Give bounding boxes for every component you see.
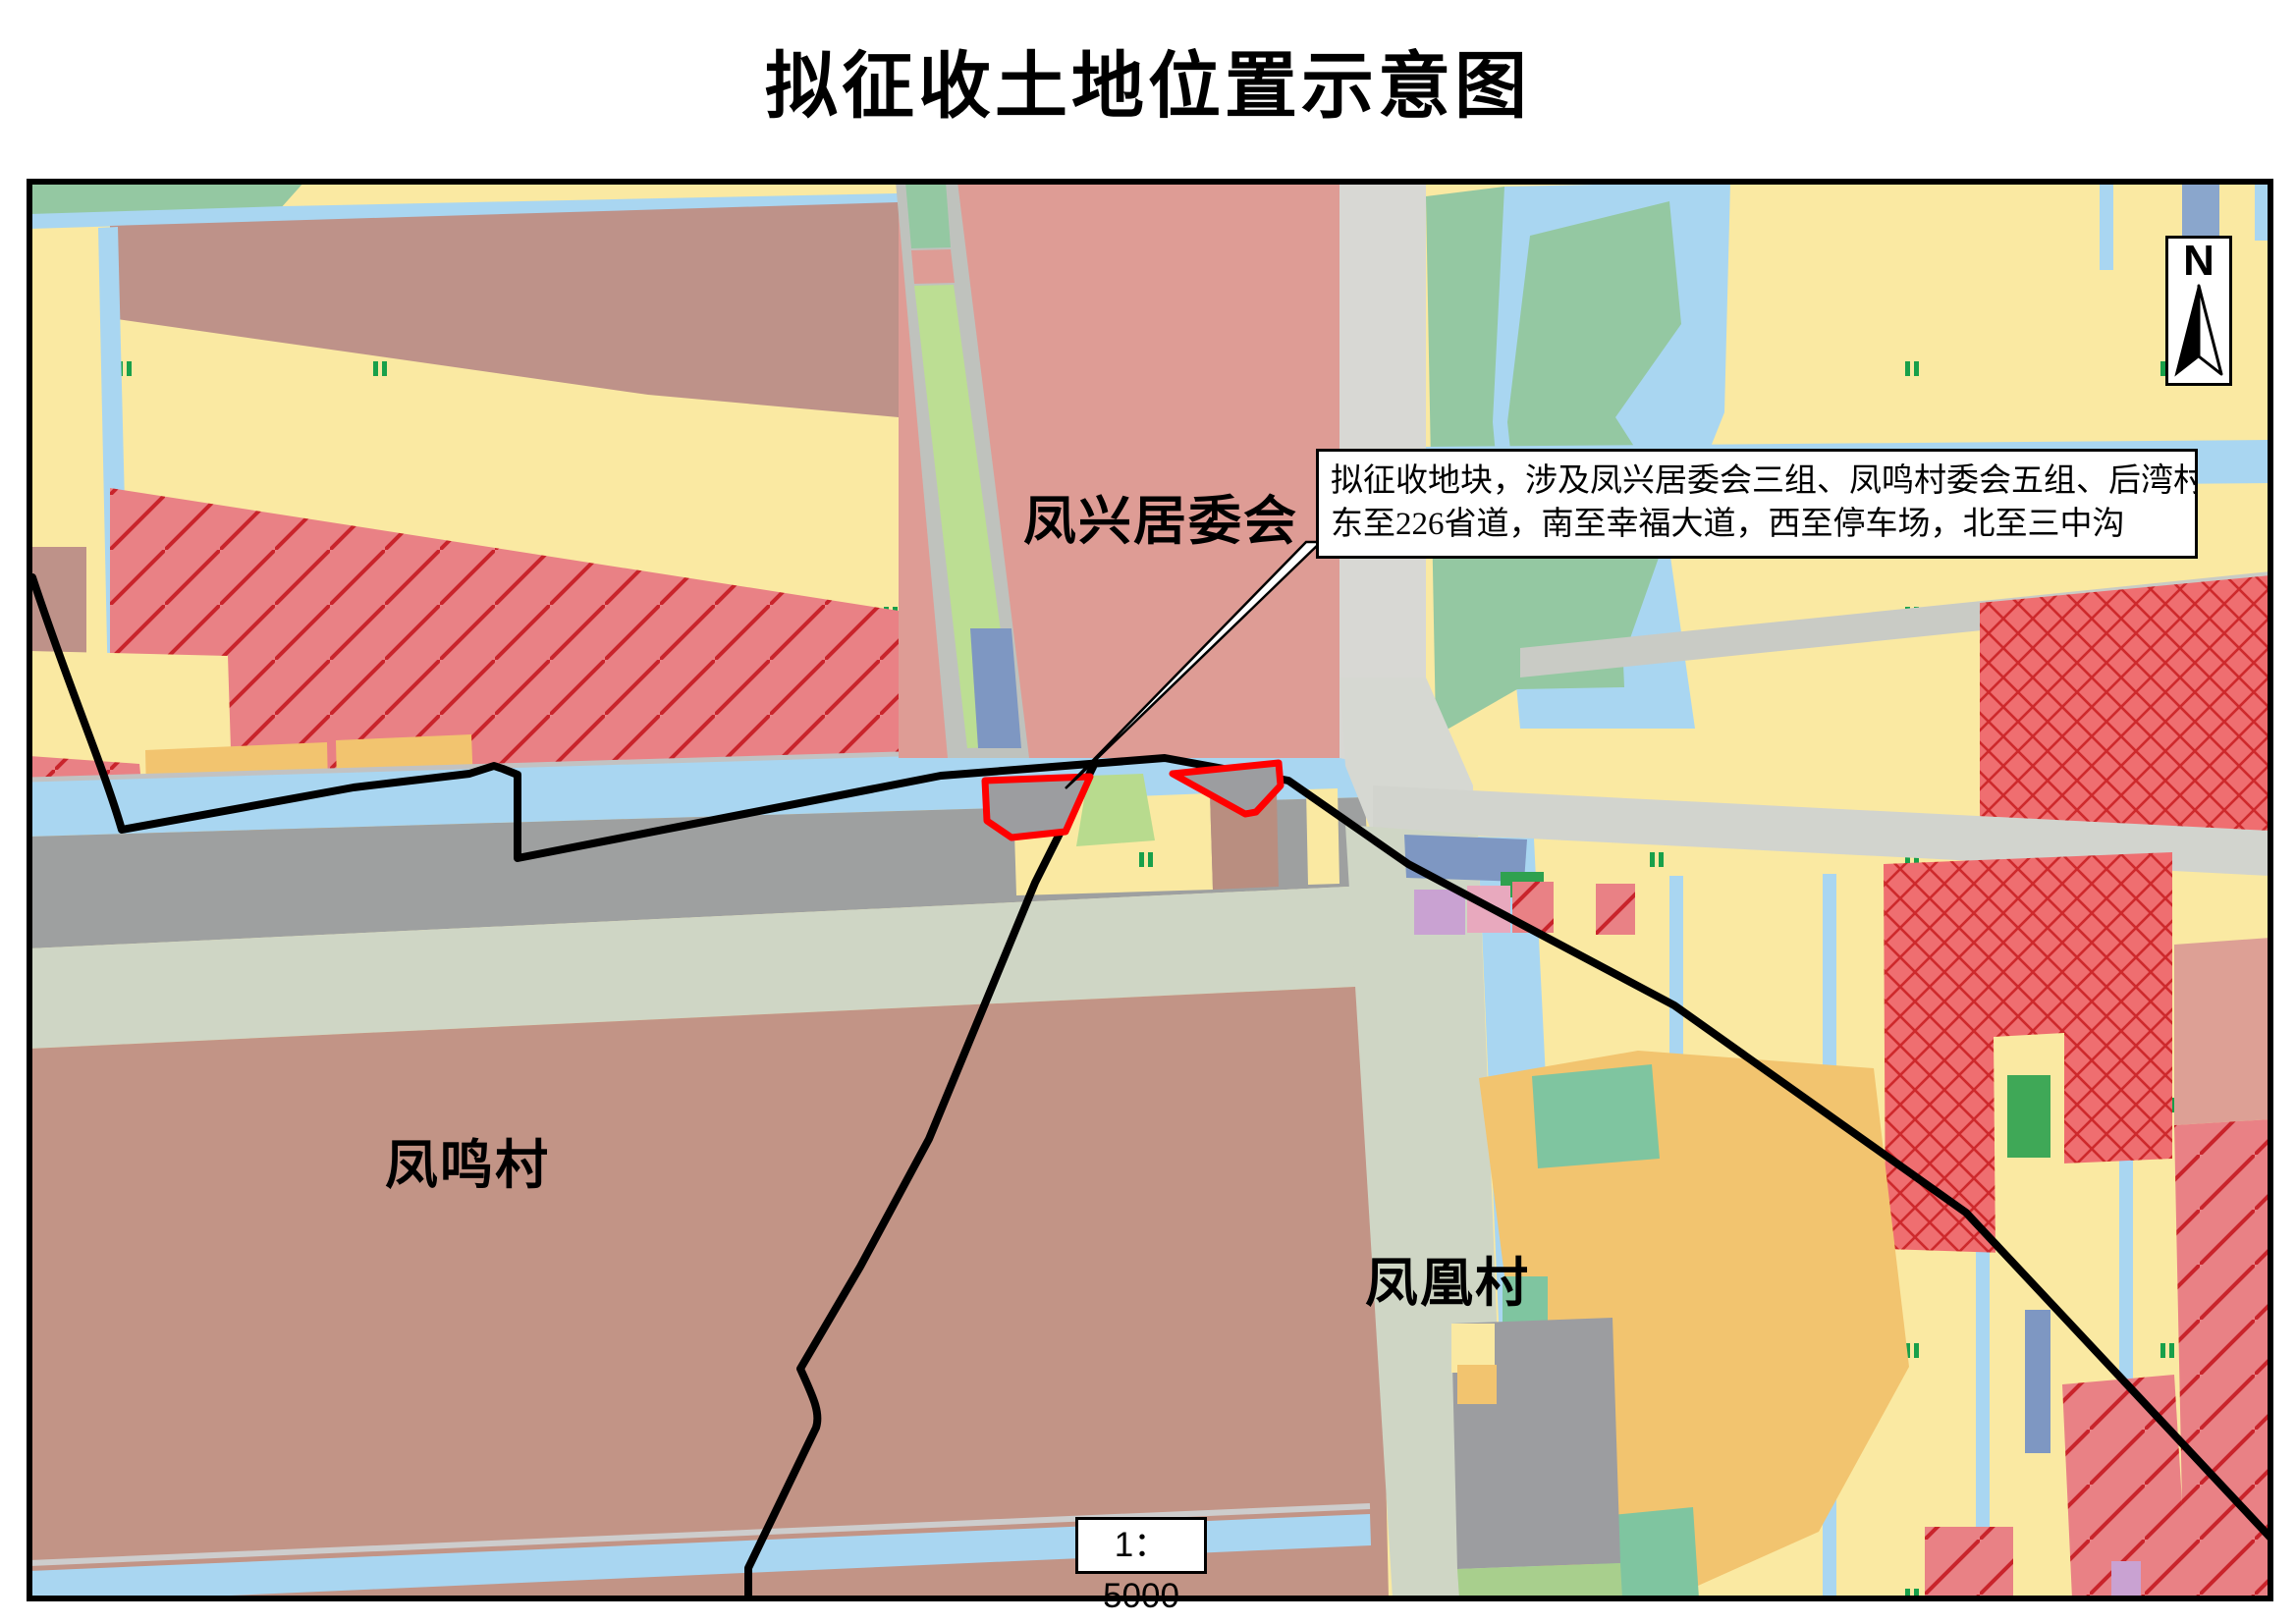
north-label: N [2168, 239, 2229, 284]
fengming-village-layer [29, 986, 1389, 1604]
label-fenghuang-village: 凤凰村 [1365, 1239, 1530, 1317]
label-fengming-village: 凤鸣村 [385, 1121, 550, 1199]
annotation-line-2: 东至226省道，南至幸福大道，西至停车场，北至三中沟 [1331, 503, 2183, 546]
map-scale: 1：5000 [1075, 1517, 1207, 1574]
land-acquisition-map-page: 拟征收土地位置示意图 [0, 0, 2296, 1624]
north-arrow: N [2165, 236, 2232, 386]
north-arrow-icon [2171, 284, 2226, 378]
map-canvas [0, 0, 2296, 1624]
parcel-annotation-callout: 拟征收地块，涉及凤兴居委会三组、凤鸣村委会五组、后湾村委会六组 东至226省道，… [1316, 449, 2198, 559]
label-fengxing-committee: 凤兴居委会 [1023, 477, 1298, 555]
annotation-line-1: 拟征收地块，涉及凤兴居委会三组、凤鸣村委会五组、后湾村委会六组 [1331, 460, 2183, 503]
